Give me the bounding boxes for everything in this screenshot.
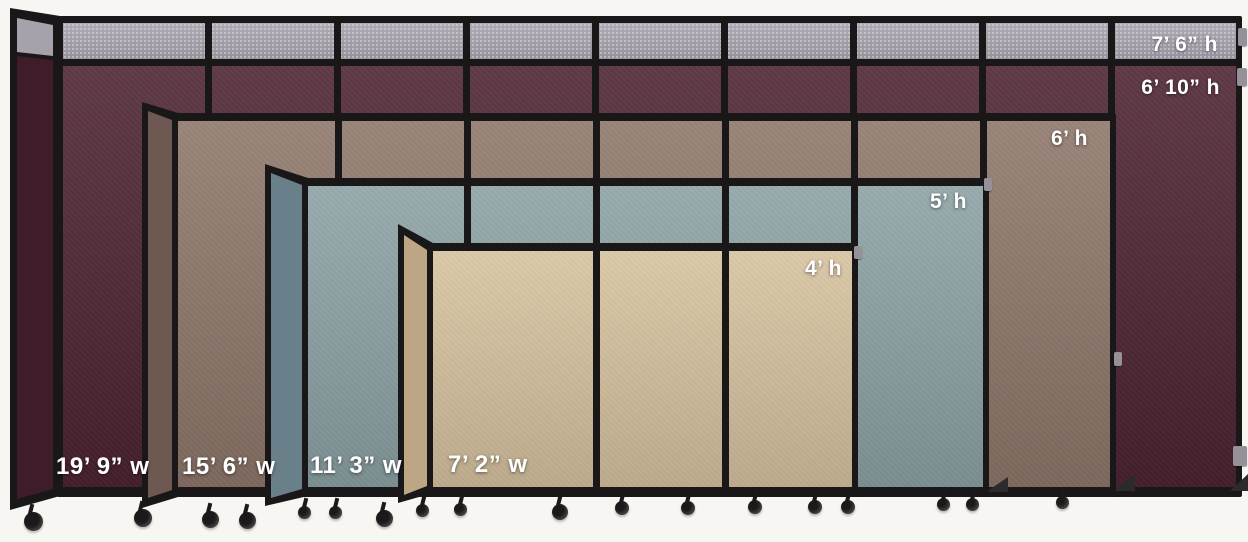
- caster-wheel: [841, 500, 855, 514]
- caster-wheel: [134, 509, 152, 527]
- caster-wheel: [24, 512, 43, 531]
- caster-wheel: [1056, 496, 1069, 509]
- scene: 7’ 6” h 6’ 10” h 6’ h 5’ h 4’ h 19’ 9” w…: [0, 0, 1248, 542]
- height-label-6ft10: 6’ 10” h: [1141, 76, 1220, 100]
- caster-wheel: [966, 498, 979, 511]
- height-label-5ft: 5’ h: [930, 190, 967, 214]
- width-label-19ft9: 19’ 9” w: [56, 453, 149, 481]
- caster-wheel: [681, 501, 695, 515]
- width-label-15ft6: 15’ 6” w: [182, 453, 275, 481]
- caster-wheel: [808, 500, 822, 514]
- caster-wheel: [937, 498, 950, 511]
- caster-wheel: [615, 501, 629, 515]
- height-label-6ft: 6’ h: [1051, 127, 1088, 151]
- caster-wheel: [416, 504, 429, 517]
- caster-wheel: [298, 506, 311, 519]
- panel-seam: [593, 251, 600, 487]
- width-label-7ft2: 7’ 2” w: [448, 451, 528, 479]
- panel-seam: [722, 251, 729, 487]
- caster-wheel: [239, 512, 256, 529]
- caster-wheel: [376, 510, 393, 527]
- caster-wheel: [552, 504, 568, 520]
- caster-wheel: [329, 506, 342, 519]
- height-label-7ft6: 7’ 6” h: [1151, 33, 1218, 57]
- caster-wheel: [748, 500, 762, 514]
- caster-wheel: [202, 511, 219, 528]
- caster-wheel: [454, 503, 467, 516]
- hinge-tab: [854, 246, 862, 259]
- height-label-4ft: 4’ h: [805, 257, 842, 281]
- width-label-11ft3: 11’ 3” w: [310, 452, 402, 480]
